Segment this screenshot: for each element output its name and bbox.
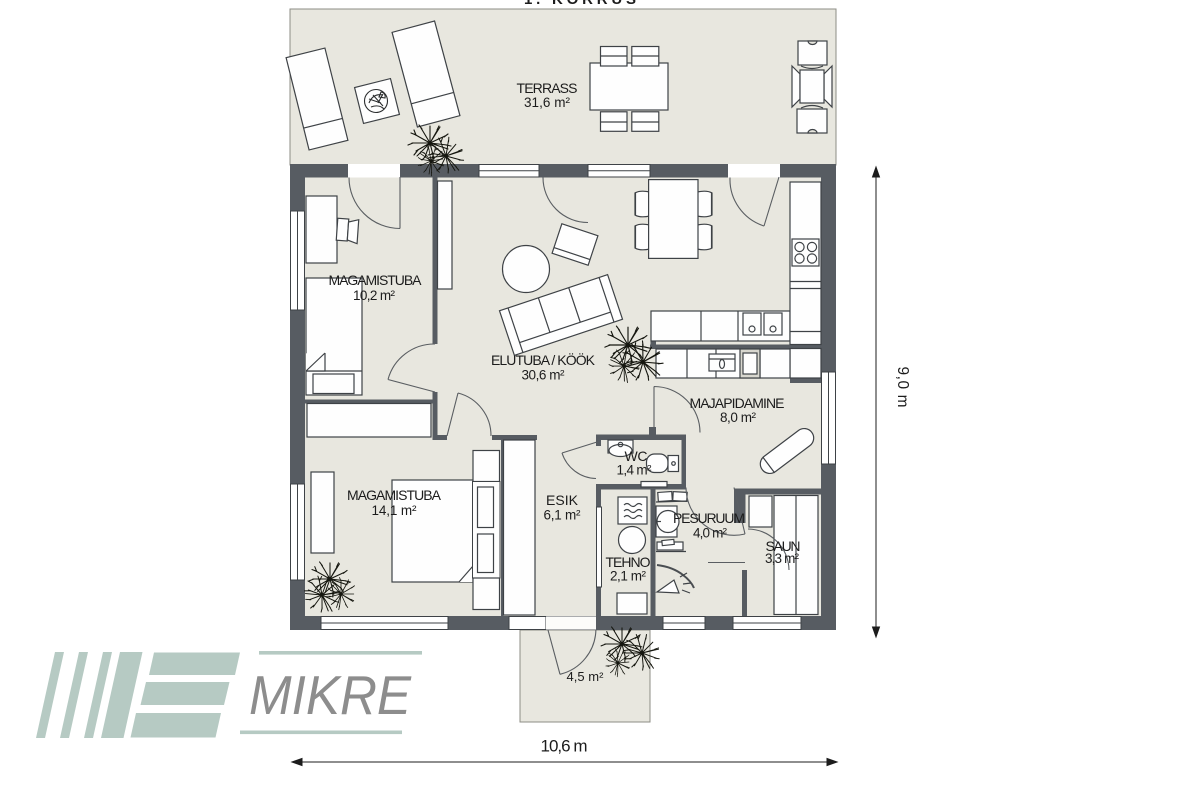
- svg-text:2,1 m²: 2,1 m²: [610, 569, 647, 584]
- svg-text:10,6 m: 10,6 m: [541, 737, 588, 756]
- svg-text:4,0 m²: 4,0 m²: [693, 526, 728, 541]
- svg-text:6,1 m²: 6,1 m²: [544, 508, 582, 523]
- svg-text:4,5 m²: 4,5 m²: [567, 669, 605, 684]
- svg-text:MAGAMISTUBA: MAGAMISTUBA: [329, 272, 423, 288]
- svg-text:1,4 m²: 1,4 m²: [617, 463, 653, 478]
- svg-text:8,0 m²: 8,0 m²: [720, 410, 757, 425]
- svg-text:30,6 m²: 30,6 m²: [522, 368, 566, 383]
- svg-text:10,2 m²: 10,2 m²: [353, 288, 396, 303]
- svg-text:PESURUUM: PESURUUM: [673, 510, 745, 526]
- svg-text:9,0 m: 9,0 m: [894, 367, 911, 408]
- svg-text:MIKRE: MIKRE: [249, 664, 412, 726]
- svg-text:ESIK: ESIK: [546, 492, 579, 508]
- svg-text:14,1 m²: 14,1 m²: [372, 503, 418, 518]
- svg-text:TERRASS: TERRASS: [517, 80, 578, 96]
- svg-text:MAJAPIDAMINE: MAJAPIDAMINE: [690, 395, 785, 411]
- svg-text:ELUTUBA / KÖÖK: ELUTUBA / KÖÖK: [491, 351, 596, 368]
- svg-text:3,3 m²: 3,3 m²: [765, 551, 800, 566]
- svg-text:31,6 m²: 31,6 m²: [524, 95, 571, 110]
- svg-text:MAGAMISTUBA: MAGAMISTUBA: [347, 487, 442, 503]
